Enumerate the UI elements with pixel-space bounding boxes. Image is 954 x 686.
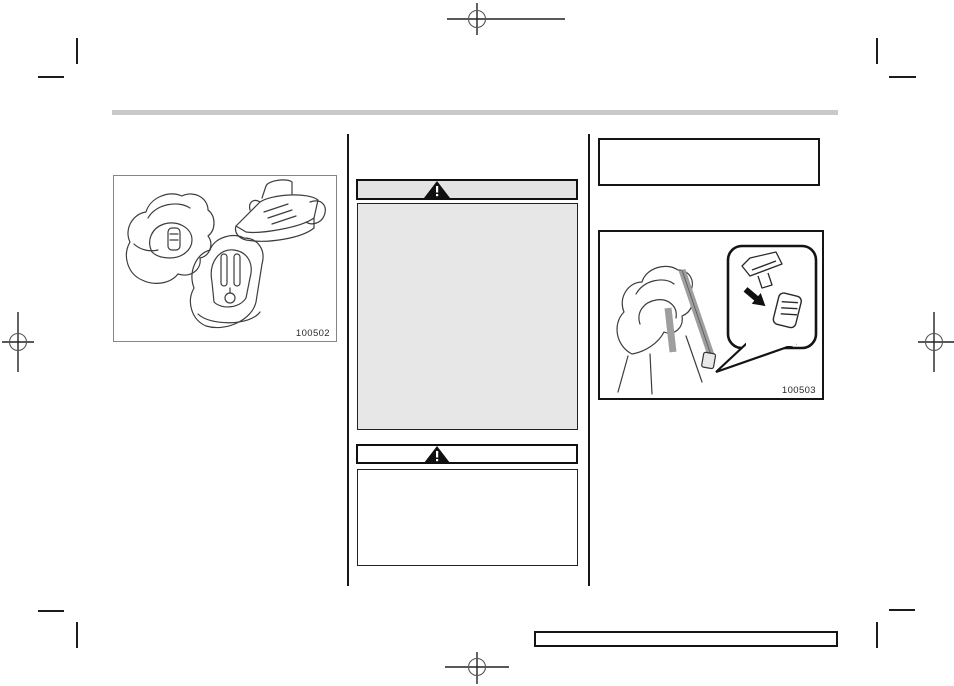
registration-target-left-middle-icon [0, 310, 36, 374]
crop-mark-top-right-vertical [876, 38, 878, 64]
footer-box [534, 631, 838, 647]
warning-header-2 [356, 444, 578, 464]
child-seat-belt-buckle-illustration [600, 232, 822, 398]
registration-target-top-center-icon [445, 1, 567, 37]
crop-mark-bottom-left-vertical [76, 622, 78, 648]
column-divider-left [347, 134, 349, 586]
warning-body-1 [357, 203, 578, 430]
figure-box-child-restraints: 100502 [113, 175, 337, 342]
crop-mark-top-left-vertical [76, 38, 78, 64]
warning-body-2 [357, 469, 578, 566]
crop-mark-bottom-right-vertical [876, 622, 878, 648]
manual-page: 100502 [0, 0, 954, 686]
registration-target-bottom-center-icon [443, 650, 511, 686]
column-divider-right [588, 134, 590, 586]
figure-number-100503: 100503 [782, 385, 816, 396]
figure-box-belt-buckle: 100503 [598, 230, 824, 400]
child-restraint-types-illustration [114, 176, 336, 338]
crop-mark-bottom-left-horizontal [38, 610, 64, 612]
registration-target-right-middle-icon [916, 310, 954, 374]
crop-mark-top-left-horizontal [38, 76, 64, 78]
note-box [598, 138, 820, 186]
page-header-rule [112, 110, 838, 115]
warning-header-1 [356, 179, 578, 200]
warning-triangle-icon [424, 181, 450, 198]
crop-mark-bottom-right-horizontal [889, 609, 915, 611]
crop-mark-top-right-horizontal [889, 76, 916, 78]
warning-triangle-icon [424, 446, 450, 463]
figure-number-100502: 100502 [296, 328, 330, 339]
